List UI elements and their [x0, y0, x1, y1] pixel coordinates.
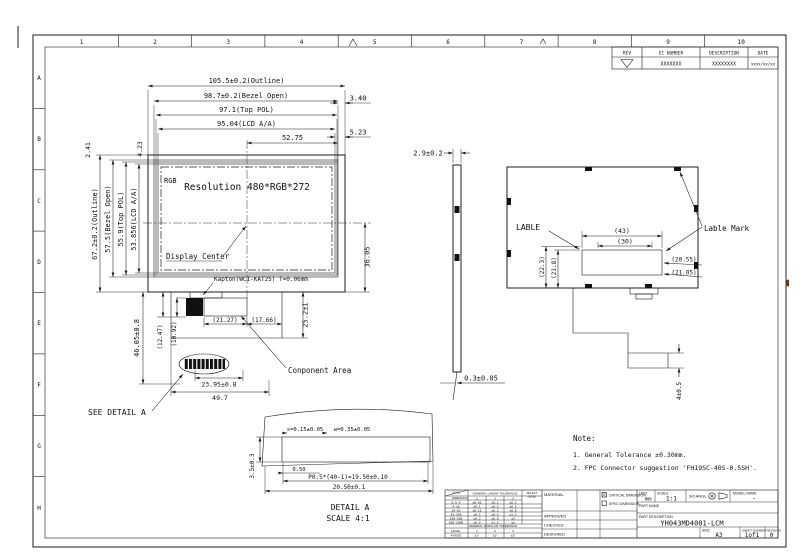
- detail-a-scale: SCALE 4:1: [326, 514, 370, 523]
- dim-46-05: 46.05±0.8: [133, 319, 141, 357]
- zone-number: 3: [226, 39, 230, 46]
- fpc-fingers: [184, 359, 225, 369]
- drawing-sheet: 1 2 3 4 5 6 7 8 9 10 A B C D E F G H REV…: [0, 0, 800, 560]
- note-line-2: 2. FPC Connector suggestion 'FH19SC-40S-…: [573, 464, 757, 472]
- dim-49-7: 49.7: [212, 394, 228, 402]
- svg-text:630-1000: 630-1000: [449, 520, 464, 524]
- dim-top-pol-width: 97.1(Top POL): [219, 106, 274, 114]
- kapton-leader: [203, 283, 213, 295]
- lable-label: LABLE: [516, 223, 540, 232]
- detail-fingers: [282, 437, 430, 462]
- tol-level-header: LEVEL: [452, 491, 461, 495]
- date-value: xxxx/xx/xx: [751, 62, 776, 67]
- dim-43: (43): [614, 227, 630, 235]
- zone-letter: F: [37, 382, 41, 389]
- checked-label: CHECKED: [544, 523, 564, 528]
- resolution-label: Resolution 480*RGB*272: [184, 182, 310, 193]
- zone-number: 5: [373, 39, 377, 46]
- dim-0-50: 0.50: [292, 467, 305, 473]
- lable-mark-label: Lable Mark: [704, 224, 750, 233]
- dim-lcd-aa-width: 95.04(LCD A/A): [217, 120, 276, 128]
- signature-section: MATERIAL APPROVED CHECKED DESIGNED CRITI…: [542, 490, 646, 538]
- tol-dimension-header: DIMENSION: [452, 496, 468, 500]
- tape-mark: [455, 206, 460, 213]
- part-description-value: YH043MD4001-LCM: [660, 520, 723, 528]
- back-view: LABLE Lable Mark (43) (30) (22.3) (21.8)…: [507, 167, 750, 400]
- approved-label: APPROVED: [544, 514, 566, 519]
- title-block: LEVEL DIMENSION GENERAL LINEAR TOLERANCE…: [445, 490, 781, 539]
- size-label: SIZE: [702, 529, 710, 533]
- fold-mark: [349, 39, 357, 46]
- driver-ic-block: [186, 298, 203, 316]
- dim-outline-width: 105.5±0.2(Outline): [209, 77, 285, 85]
- dim-0-3: 0.3±0.05: [464, 375, 498, 383]
- dim-4: 4±0.5: [676, 382, 683, 400]
- fold-mark: [540, 39, 546, 44]
- dim-2-9: 2.9±0.2: [413, 150, 443, 158]
- lable-mark-leader: [666, 227, 702, 251]
- dim-pitch: P0.5*(40-1)=19.50±0.10: [308, 474, 388, 481]
- tol-ang: ±1°: [475, 534, 480, 538]
- revision-triangle-icon: [621, 60, 633, 68]
- dim-finger-width: w=0.35±0.05: [334, 427, 370, 433]
- rev-header: REV: [623, 51, 631, 57]
- display-center-leader: [224, 226, 246, 255]
- scale-value: 1:1: [666, 496, 677, 503]
- zone-number: 8: [593, 39, 597, 46]
- model-name-value: -: [752, 495, 756, 502]
- zone-number: 7: [520, 39, 524, 46]
- dim-2-41: 2.41: [84, 142, 92, 158]
- dim-outline-height: 67.2±0.2(Outline): [91, 188, 99, 260]
- dim-3-40: 3.40: [350, 95, 367, 103]
- dim-half-width: 52.75: [282, 134, 303, 142]
- third-angle-projection-symbol: [709, 493, 727, 499]
- zone-letter: C: [37, 198, 41, 205]
- tol-ang: 2: [494, 529, 496, 533]
- zone-letter: D: [37, 259, 41, 266]
- part-description-label: PART DESCRIPTION: [639, 515, 673, 519]
- zone-number: 1: [80, 39, 84, 46]
- side-view: 2.9±0.2 0.3±0.05: [413, 149, 505, 400]
- dim-21-8: (21.8): [551, 257, 558, 279]
- material-label: MATERIAL: [544, 492, 564, 497]
- dim-21-05: (21.05): [671, 270, 696, 277]
- tol-ang-range-label: RANGE: [451, 534, 462, 538]
- dim-4-23: 4.23: [136, 141, 144, 157]
- dim-12-47: (12.47): [157, 324, 164, 349]
- dim-finger-space: s=0.15±0.05: [287, 427, 323, 433]
- spec-dimension-label: SPEC DIMENSION: [609, 502, 640, 506]
- kapton-label: Kapton(WCI-KAT25) T=0.06mm: [214, 276, 308, 283]
- dim-25-2: 25.2±1: [302, 302, 310, 327]
- description-header: DESCRIPTION: [709, 51, 739, 57]
- part-name-label: PART NAME: [639, 504, 660, 508]
- description-value: XXXXXXXX: [712, 62, 736, 68]
- dim-5-23: 5.23: [350, 129, 367, 137]
- revision-label: REVISION: [767, 529, 781, 533]
- tol-select-header2: LEVEL: [528, 495, 537, 499]
- zone-number: 9: [666, 39, 670, 46]
- note-heading: Note:: [573, 434, 596, 443]
- zone-letter: G: [37, 443, 41, 450]
- unit-label: UNIT: [639, 492, 648, 496]
- engineering-drawing: 1 2 3 4 5 6 7 8 9 10 A B C D E F G H REV…: [0, 0, 800, 560]
- dim-22-3: (22.3): [539, 256, 546, 278]
- zone-letter: E: [37, 320, 41, 327]
- tol-ang: 1: [476, 529, 478, 533]
- dim-total-width: 20.50±0.1: [333, 484, 366, 491]
- ec-number-value: XXXXXXX: [660, 62, 681, 68]
- detail-a-view: s=0.15±0.05 w=0.35±0.05 0.50 P0.5*(40-1)…: [249, 409, 433, 523]
- lable-mark-leader-2: [680, 172, 702, 226]
- zone-number: 10: [738, 39, 746, 46]
- dim-23-95: 23.95±0.8: [201, 381, 236, 389]
- zone-number: 6: [446, 39, 450, 46]
- back-fpc-tail: 4±0.5: [573, 288, 684, 400]
- angle-label: 3rd ANGL: [689, 494, 707, 499]
- ec-number-header: EC NUMBER: [659, 51, 684, 57]
- tol-linear-header: GENERAL LINEAR TOLERANCE: [473, 492, 518, 496]
- sheet-value: 1of1: [745, 532, 760, 539]
- component-hatch-block: [204, 298, 247, 316]
- dim-bezel-open-height: 57.5(Bezel Open): [104, 185, 112, 252]
- dim-36-05: 36.05: [364, 246, 372, 267]
- notes: Note: 1. General Tolerance ±0.30mm. 2. F…: [573, 434, 757, 472]
- label-mark-block: [582, 250, 662, 275]
- size-value: A3: [715, 532, 723, 539]
- zone-number: 2: [153, 39, 157, 46]
- tol-angular-header: GENERAL ANGULAR TOLERANCE: [469, 524, 517, 528]
- drawing-info-section: UNIT mm SCALE 1:1 3rd ANGL MODEL NAME - …: [637, 490, 781, 539]
- revision-value: 0: [770, 532, 774, 539]
- tolerance-table: LEVEL DIMENSION GENERAL LINEAR TOLERANCE…: [445, 490, 542, 538]
- front-view: RGB Resolution 480*RGB*272 Display Cente…: [84, 77, 372, 417]
- designed-label: DESIGNED: [544, 532, 565, 537]
- zone-letter: B: [37, 136, 41, 143]
- component-area: (21.27) (17.66) (12.47) (10.92) 46.05±0.…: [88, 292, 351, 417]
- date-header: DATE: [758, 51, 769, 57]
- dim-20-55: (20.55): [671, 257, 696, 264]
- see-detail-a-label: SEE DETAIL A: [88, 408, 146, 417]
- rgb-label: RGB: [164, 177, 177, 185]
- tol-ang: 3: [512, 529, 514, 533]
- tol-ang: ±2°: [493, 534, 498, 538]
- dim-3-5: 3.5±0.3: [249, 453, 256, 479]
- zone-letter: A: [37, 75, 41, 82]
- tol-ang: ±3°: [511, 534, 516, 538]
- zone-number: 4: [300, 39, 304, 46]
- detail-a-title: DETAIL A: [331, 503, 370, 512]
- component-area-label: Conponent Area: [288, 366, 351, 375]
- tape-mark: [455, 254, 460, 261]
- note-line-1: 1. General Tolerance ±0.30mm.: [573, 451, 687, 459]
- unit-value: mm: [645, 497, 652, 503]
- see-detail-a-leader: [152, 374, 183, 411]
- dim-17-66: (17.66): [251, 317, 276, 324]
- dim-lcd-aa-height: 53.856(LCD A/A): [130, 187, 138, 250]
- fpc-tail-line: [453, 372, 457, 400]
- tol-ang-level-label: LEVEL: [451, 529, 461, 533]
- zone-letter: H: [37, 505, 41, 512]
- dim-top-pol-height: 55.9(Top POL): [117, 192, 125, 247]
- revision-table: REV EC NUMBER DESCRIPTION DATE XXXXXXX X…: [612, 47, 778, 69]
- display-center-label: Display Center: [166, 252, 230, 261]
- dim-10-92: (10.92): [171, 321, 178, 346]
- dim-21-27: (21.27): [212, 317, 237, 324]
- dim-bezel-open-width: 98.7±0.2(Bezel Open): [204, 92, 288, 100]
- dim-30: (30): [617, 238, 633, 246]
